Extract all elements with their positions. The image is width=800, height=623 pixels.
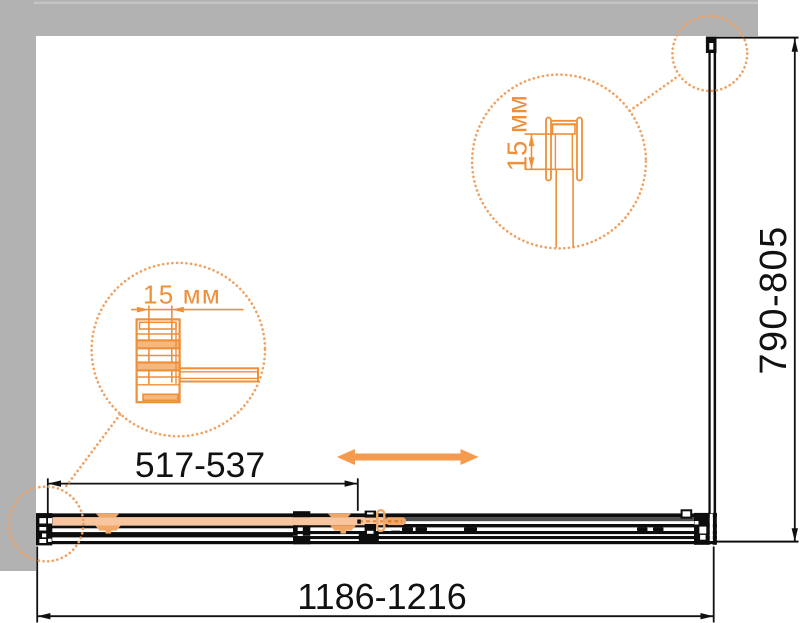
svg-text:790-805: 790-805 <box>753 225 795 374</box>
svg-text:15 мм: 15 мм <box>501 95 532 171</box>
svg-text:15 мм: 15 мм <box>143 279 221 309</box>
svg-text:517-537: 517-537 <box>135 445 265 485</box>
svg-text:1186-1216: 1186-1216 <box>297 576 467 617</box>
